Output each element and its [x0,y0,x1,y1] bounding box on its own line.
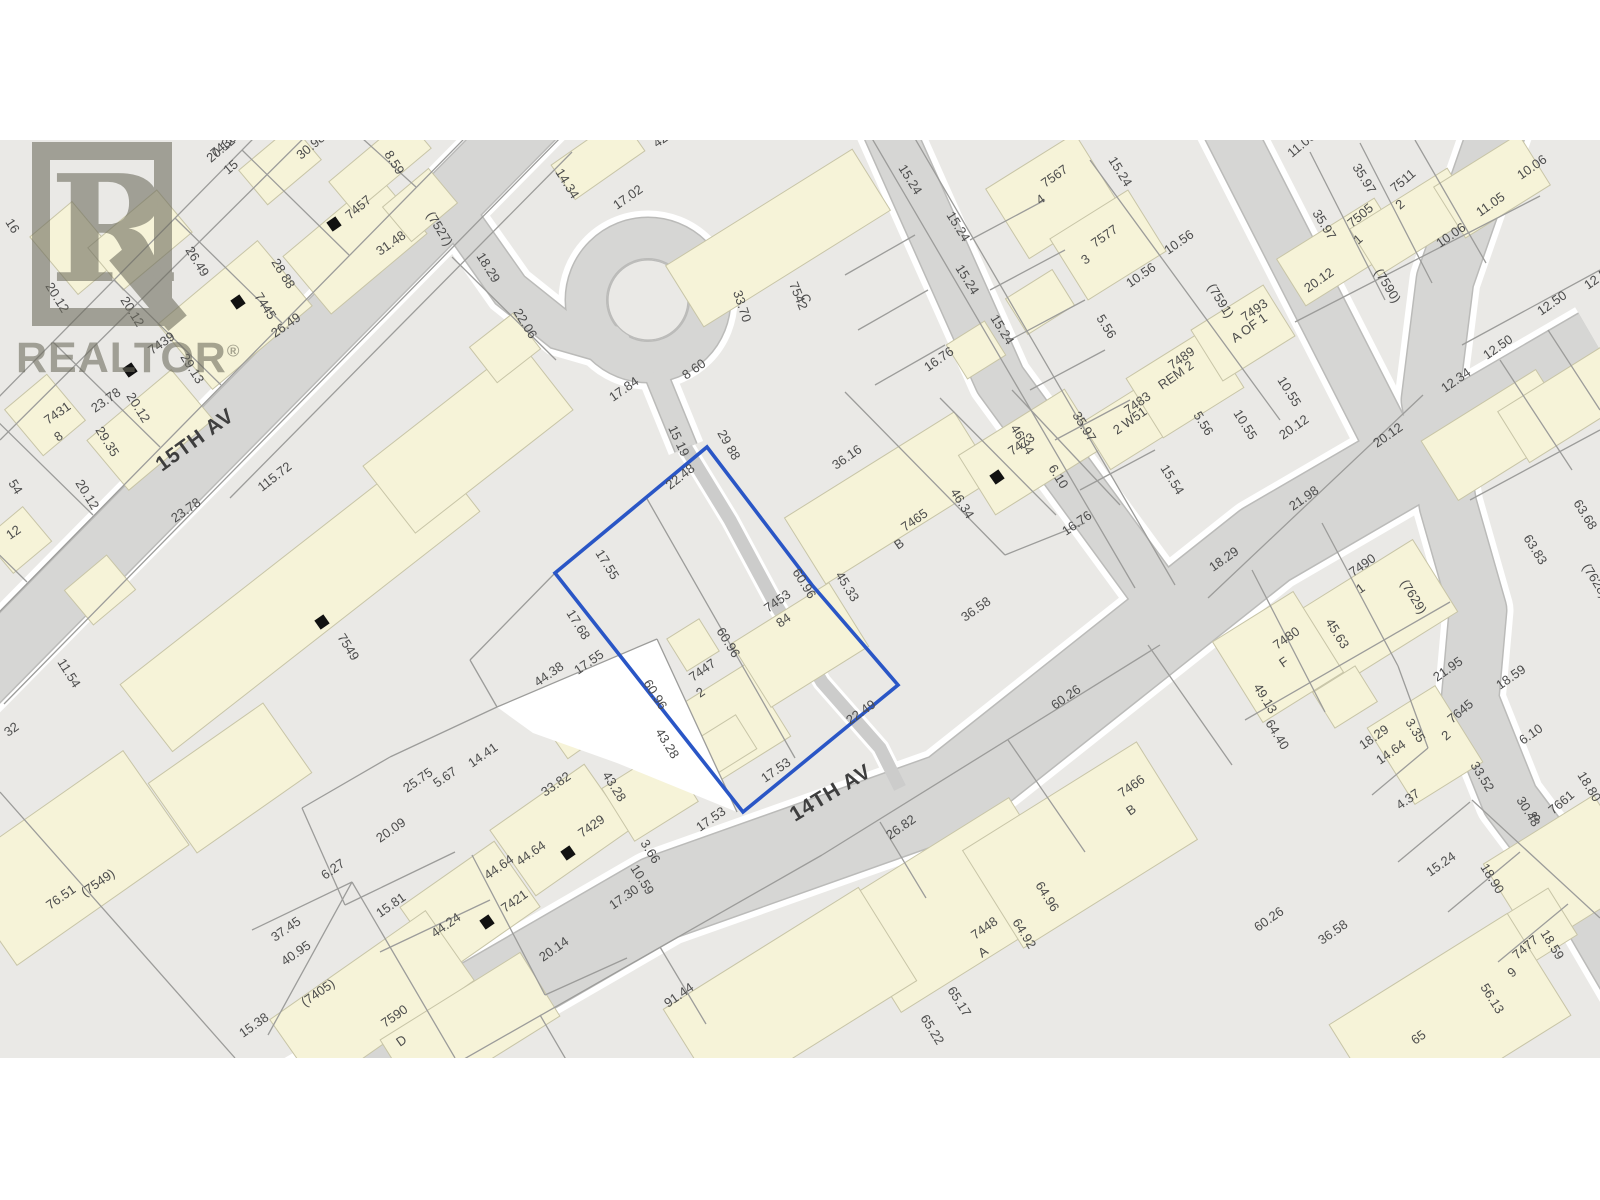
map-layers: 20.1230.988.59743615745731.4826.4928 887… [0,10,1600,1140]
cadastral-map[interactable]: 20.1230.988.59743615745731.4826.4928 887… [0,0,1600,1200]
map-stage: 20.1230.988.59743615745731.4826.4928 887… [0,0,1600,1200]
